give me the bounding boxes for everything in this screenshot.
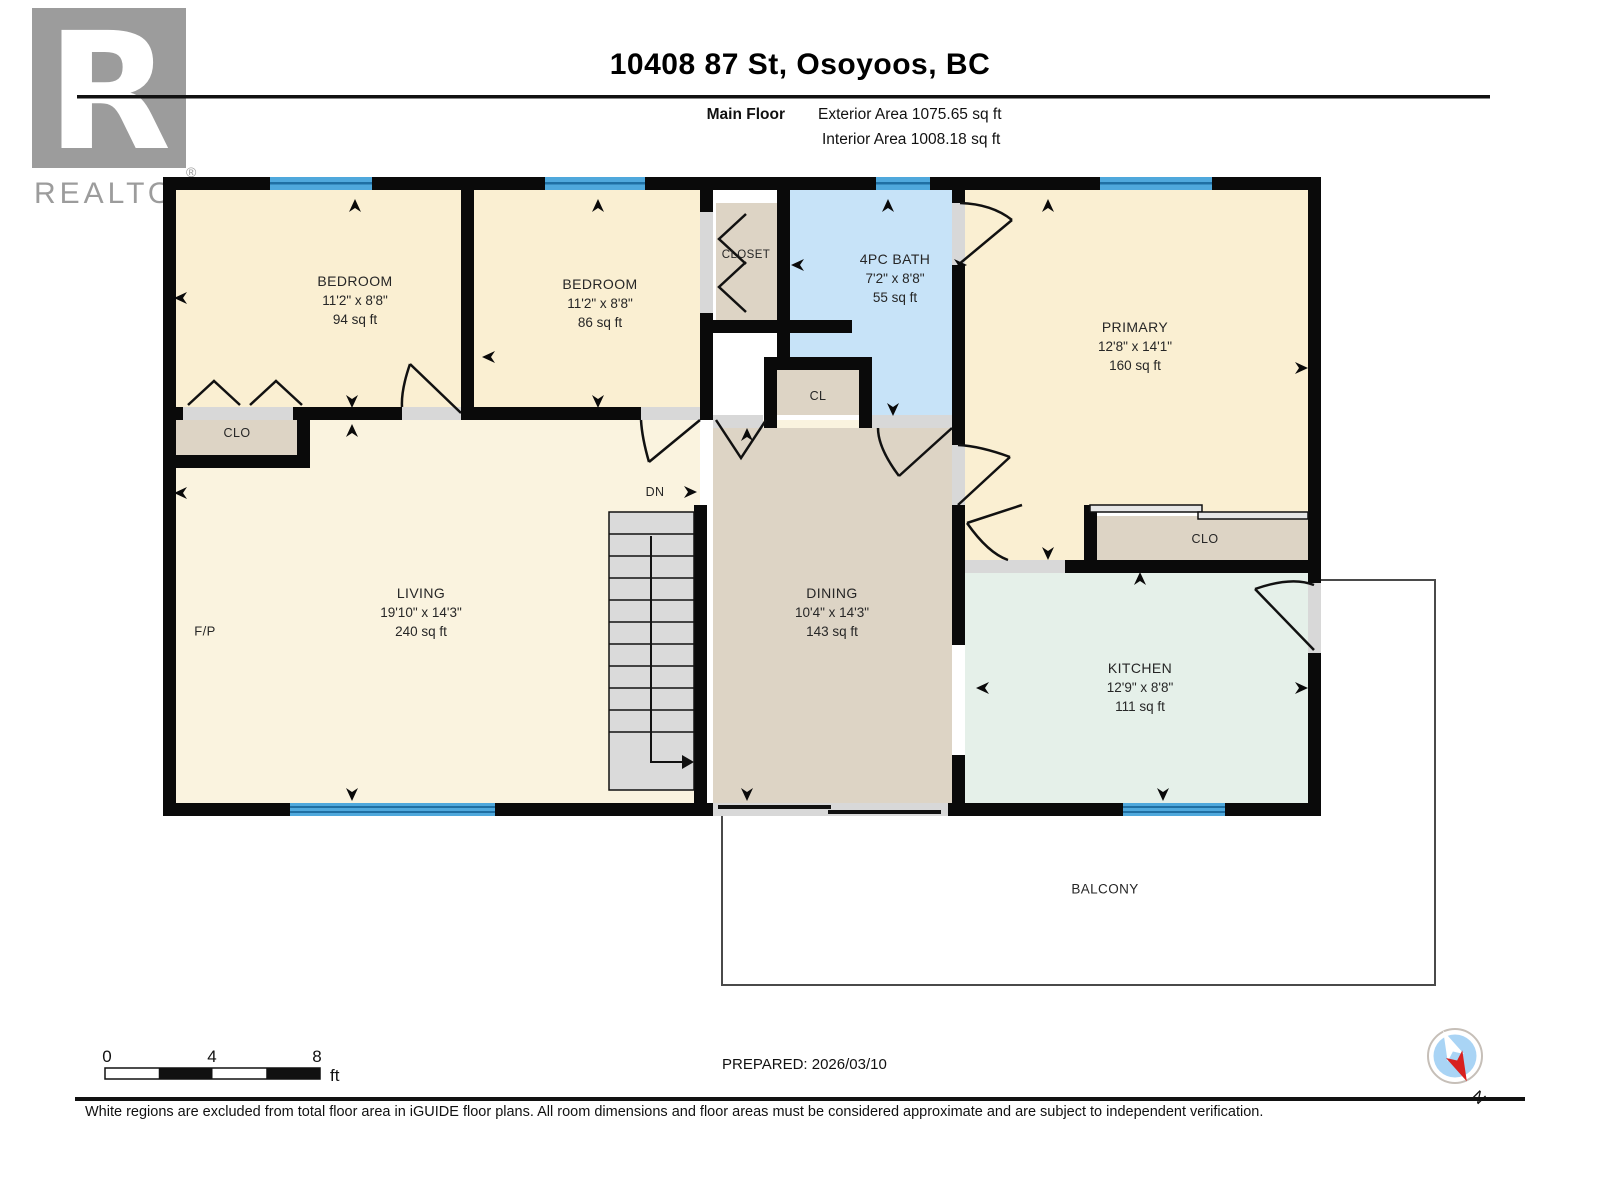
room-label-bath: 4PC BATH 7'2" x 8'8" 55 sq ft <box>860 251 931 305</box>
room-label-bedroom-1: BEDROOM 11'2" x 8'8" 94 sq ft <box>317 273 392 327</box>
stairs <box>609 512 694 790</box>
disclaimer-text: White regions are excluded from total fl… <box>85 1104 1263 1120</box>
label-fireplace: F/P <box>194 624 215 639</box>
compass: N <box>1428 1027 1488 1108</box>
scale-tick-0: 0 <box>102 1047 111 1066</box>
room-area: 240 sq ft <box>380 624 462 639</box>
room-area: 86 sq ft <box>562 315 637 330</box>
room-name: KITCHEN <box>1107 660 1174 676</box>
realtor-logo-letter: R <box>47 0 172 187</box>
label-closet-top: CLOSET <box>722 249 770 261</box>
scale-tick-4: 4 <box>207 1047 216 1066</box>
room-name: BEDROOM <box>562 276 637 292</box>
floorplan-page: R REALTOR ® <box>0 0 1600 1200</box>
label-clo-right: CLO <box>1192 532 1219 546</box>
room-dims: 10'4" x 14'3" <box>795 605 869 620</box>
interior-area: Interior Area 1008.18 sq ft <box>822 131 1000 149</box>
room-area: 160 sq ft <box>1098 358 1172 373</box>
room-name: DINING <box>795 585 869 601</box>
footer-rule <box>75 1097 1525 1101</box>
room-dims: 7'2" x 8'8" <box>860 271 931 286</box>
room-dims: 11'2" x 8'8" <box>317 293 392 308</box>
room-name: LIVING <box>380 585 462 601</box>
room-area: 111 sq ft <box>1107 699 1174 714</box>
room-dims: 11'2" x 8'8" <box>562 296 637 311</box>
room-label-bedroom-2: BEDROOM 11'2" x 8'8" 86 sq ft <box>562 276 637 330</box>
room-label-living: LIVING 19'10" x 14'3" 240 sq ft <box>380 585 462 639</box>
room-area: 94 sq ft <box>317 312 392 327</box>
label-clo-left: CLO <box>224 426 251 440</box>
room-dims: 12'9" x 8'8" <box>1107 680 1174 695</box>
exterior-area: Exterior Area 1075.65 sq ft <box>818 106 1002 124</box>
page-title: 10408 87 St, Osoyoos, BC <box>0 48 1600 82</box>
room-name: 4PC BATH <box>860 251 931 267</box>
scale-tick-8: 8 <box>312 1047 321 1066</box>
prepared-date: PREPARED: 2026/03/10 <box>722 1056 887 1073</box>
header-rule <box>77 95 1490 99</box>
label-cl: CL <box>810 389 827 403</box>
scale-unit: ft <box>330 1066 340 1085</box>
scale-bar: 0 4 8 ft <box>102 1047 339 1085</box>
room-dims: 12'8" x 14'1" <box>1098 339 1172 354</box>
label-balcony: BALCONY <box>1071 882 1138 897</box>
compass-disc <box>1434 1035 1477 1078</box>
room-area: 55 sq ft <box>860 290 931 305</box>
label-dn: DN <box>646 485 665 499</box>
room-dims: 19'10" x 14'3" <box>380 605 462 620</box>
room-label-kitchen: KITCHEN 12'9" x 8'8" 111 sq ft <box>1107 660 1174 714</box>
room-area: 143 sq ft <box>795 624 869 639</box>
room-name: BEDROOM <box>317 273 392 289</box>
room-name: PRIMARY <box>1098 319 1172 335</box>
room-label-dining: DINING 10'4" x 14'3" 143 sq ft <box>795 585 869 639</box>
room-label-primary: PRIMARY 12'8" x 14'1" 160 sq ft <box>1098 319 1172 373</box>
room-fill-closet-top <box>716 203 777 320</box>
floor-label: Main Floor <box>560 106 785 124</box>
